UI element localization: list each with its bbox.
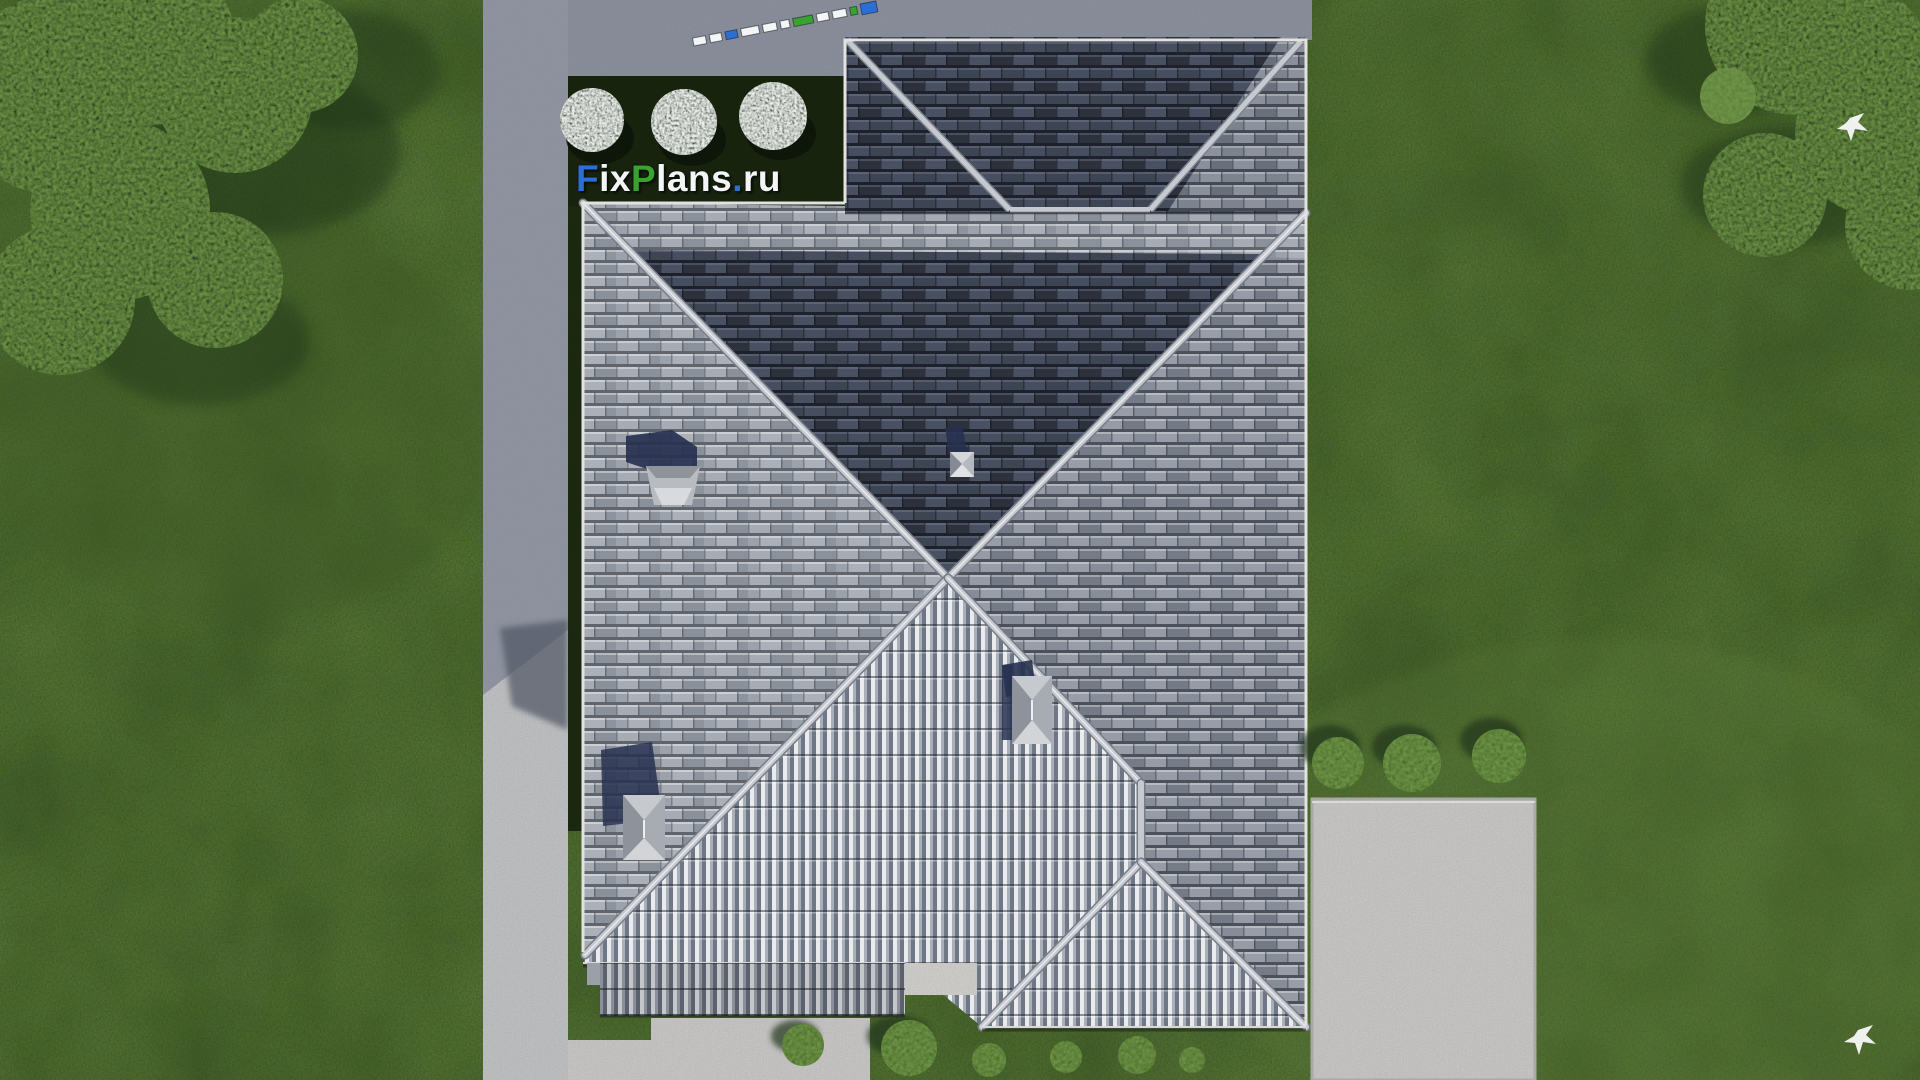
bush [1383, 734, 1441, 792]
bush [1050, 1041, 1082, 1073]
logo-3d-segment [725, 30, 738, 40]
bush [881, 1020, 937, 1076]
watermark-part-ix: ix [599, 158, 631, 199]
stone-patch [905, 963, 977, 995]
bush [1312, 737, 1364, 789]
light-bush [1700, 68, 1756, 124]
driveway-shaded-section [483, 0, 568, 695]
rear-patio [1312, 799, 1535, 1080]
watermark-part-dot: . [732, 158, 743, 199]
watermark-logo: FixPlans.ru [576, 160, 781, 197]
logo-3d-segment [860, 1, 878, 15]
logo-3d-segment [709, 33, 722, 43]
bushes-east-row [1300, 718, 1526, 792]
bush [1118, 1036, 1156, 1074]
watermark-part-f: F [576, 158, 599, 199]
bush [1472, 729, 1526, 783]
bush [782, 1024, 824, 1066]
bush [972, 1043, 1006, 1077]
logo-3d-segment [816, 12, 829, 22]
logo-3d-segment [780, 19, 790, 29]
site-plan-canvas [0, 0, 1920, 1080]
hedge-strip [568, 206, 583, 831]
watermark-part-lans: lans [656, 158, 732, 199]
watermark-part-p: P [631, 158, 656, 199]
logo-3d-segment [850, 6, 858, 15]
aerial-house-render: FixPlans.ru [0, 0, 1920, 1080]
front-walkway [568, 1040, 651, 1080]
roof-north-wing [845, 37, 1306, 213]
front-pad [651, 1018, 870, 1080]
bush [1179, 1047, 1205, 1073]
watermark-part-ru: ru [743, 158, 781, 199]
porch-roof-strip [600, 963, 905, 1016]
